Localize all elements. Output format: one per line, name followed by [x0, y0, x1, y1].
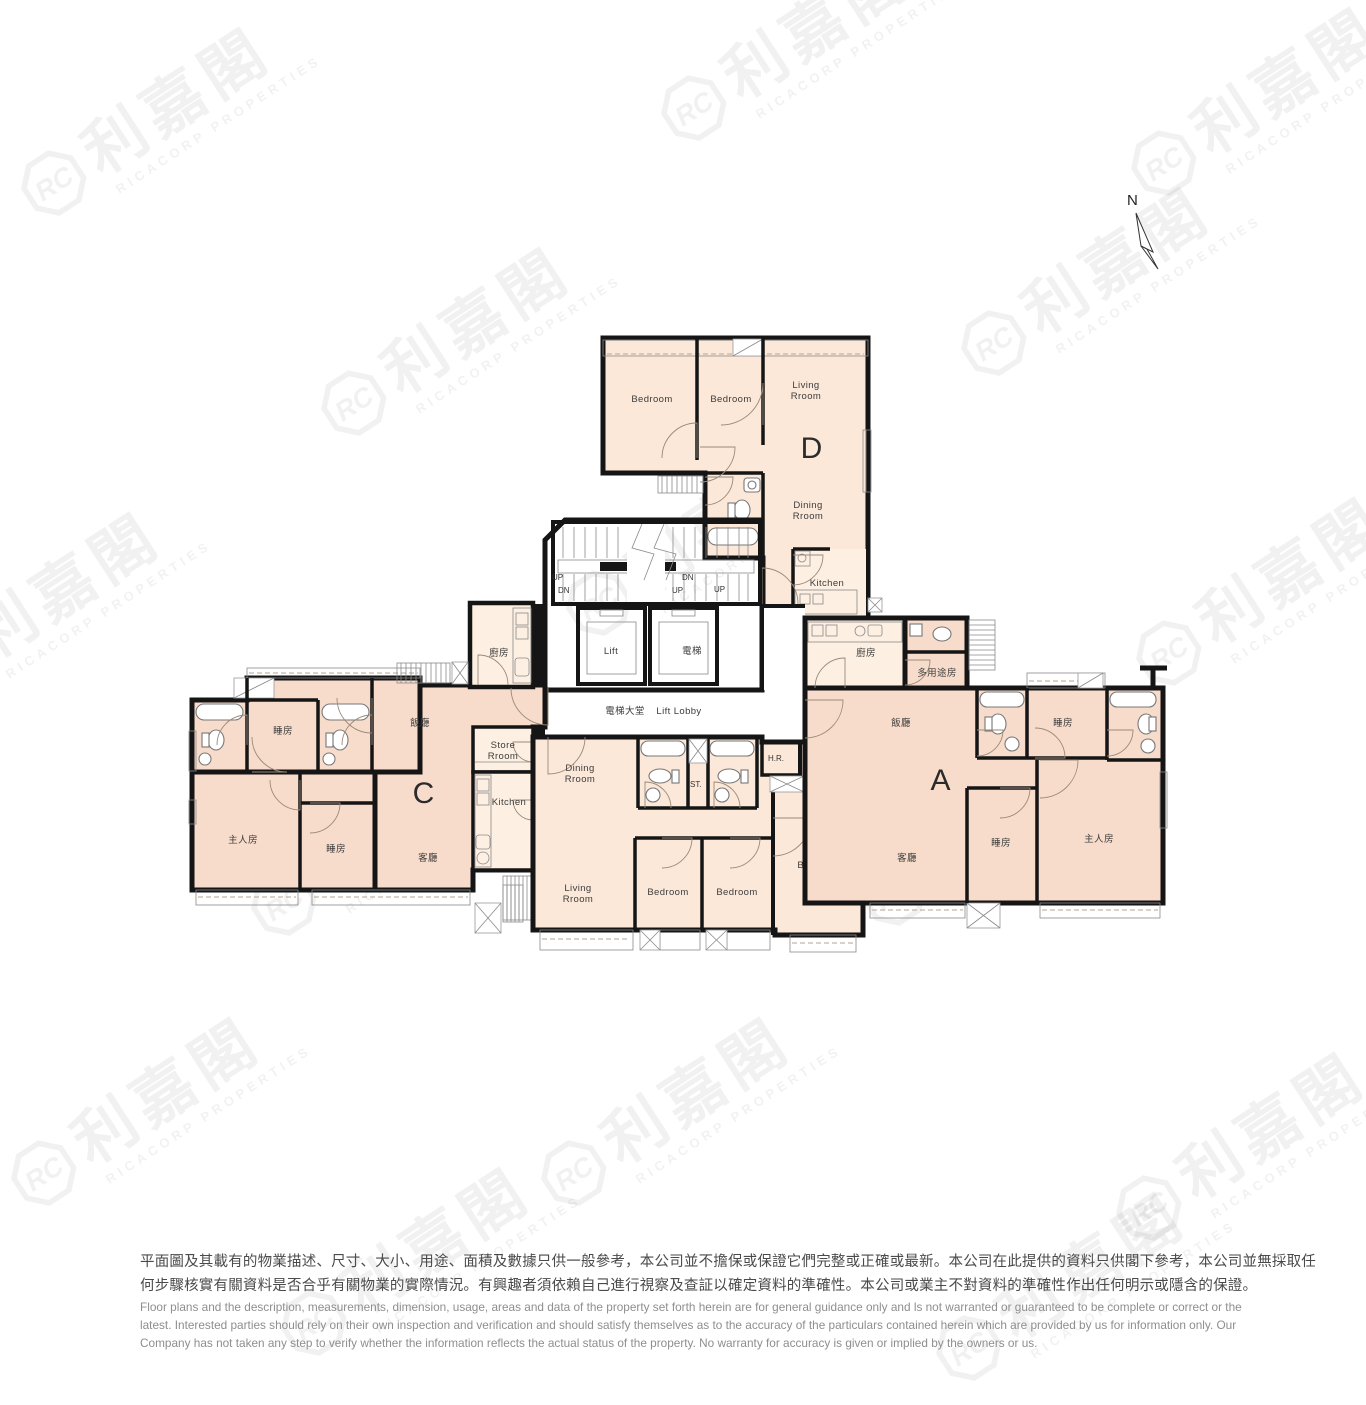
room-label-a-bed-top: 睡房	[1053, 717, 1073, 729]
room-label-c-store-1: Store	[491, 740, 516, 751]
north-arrow: N	[1127, 192, 1158, 269]
disclaimer-en-line3: Company has not taken any step to verify…	[140, 1334, 1250, 1352]
room-label-b-hr: H.R.	[768, 754, 784, 763]
unit-letter-a: A	[930, 764, 951, 797]
room-label-c-bed-top: 睡房	[273, 725, 293, 737]
core-stairs-lifts: UP DN DN UP UP Lift 電梯 電梯大堂 Lift Lobby	[532, 520, 805, 737]
stair-label-up2: UP	[672, 586, 683, 595]
room-label-a-kitchen: 廚房	[856, 647, 876, 659]
disclaimer-zh-line1: 平面圖及其載有的物業描述、尺寸、大小、用途、面積及數據只供一般參考，本公司並不擔…	[140, 1250, 1250, 1274]
stair-label-dn: DN	[558, 586, 570, 595]
room-label-c-living: 客廳	[418, 852, 438, 864]
room-label-a-dining: 飯廳	[891, 717, 911, 729]
unit-letter-d: D	[801, 432, 824, 465]
room-label-b-bedroom2: Bedroom	[716, 887, 757, 898]
floor-plan-page: { "north": { "label": "N" }, "watermark"…	[0, 0, 1366, 1366]
north-label: N	[1127, 192, 1138, 209]
unit-a: 廚房 多用途房 飯廳 睡房 A 客廳 睡房 主人房	[805, 618, 1167, 928]
room-label-a-master: 主人房	[1084, 833, 1114, 845]
room-label-d-bedroom1: Bedroom	[631, 394, 672, 405]
room-label-b-bedroom1: Bedroom	[647, 887, 688, 898]
room-label-c-store-2: Rroom	[488, 751, 519, 762]
room-label-d-living-2: Rroom	[791, 391, 822, 402]
unit-letter-c: C	[413, 777, 436, 810]
room-label-b-living-1: Living	[564, 883, 591, 894]
room-label-c-dining: 飯廳	[410, 717, 430, 729]
room-label-c-kitchen-cn: 廚房	[489, 647, 509, 659]
disclaimer-en-line1: Floor plans and the description, measure…	[140, 1298, 1250, 1316]
room-label-b-dining-1: Dining	[565, 763, 594, 774]
room-label-a-multi: 多用途房	[917, 667, 957, 679]
room-label-a-bed-bottom: 睡房	[991, 837, 1011, 849]
stair-label-up3: UP	[714, 585, 725, 594]
lift-label-cn: 電梯	[682, 645, 702, 657]
floor-plan: Bedroom Bedroom Living Rroom D Dining Rr…	[0, 0, 1366, 1366]
disclaimer-en-line2: latest. Interested parties should rely o…	[140, 1316, 1250, 1334]
room-label-a-living: 客廳	[897, 852, 917, 864]
room-label-d-dining-1: Dining	[793, 500, 822, 511]
room-label-c-bed-bottom: 睡房	[326, 843, 346, 855]
room-label-d-living-1: Living	[792, 380, 819, 391]
room-label-b-living-2: Rroom	[563, 894, 594, 905]
room-label-d-bedroom2: Bedroom	[710, 394, 751, 405]
lift-label-en: Lift	[604, 646, 618, 657]
disclaimer: 平面圖及其載有的物業描述、尺寸、大小、用途、面積及數據只供一般參考，本公司並不擔…	[140, 1250, 1250, 1352]
room-label-b-dining-2: Rroom	[565, 774, 596, 785]
room-label-b-st: ST.	[690, 780, 702, 789]
lobby-label-en: Lift Lobby	[656, 706, 701, 717]
room-label-c-kitchen-en: Kitchen	[492, 797, 527, 808]
room-label-c-master: 主人房	[228, 834, 258, 846]
unit-c: 睡房 飯廳 廚房 Store Rroom C Kitchen 主人房 睡房 客廳	[189, 603, 548, 933]
stair-label-dn2: DN	[682, 573, 694, 582]
room-label-d-dining-2: Rroom	[793, 511, 824, 522]
stair-label-up: UP	[552, 573, 563, 582]
lobby-label-cn: 電梯大堂	[605, 705, 645, 717]
room-label-d-kitchen: Kitchen	[810, 578, 845, 589]
disclaimer-zh-line2: 何步驟核實有關資料是否合乎有關物業的實際情況。有興趣者須依賴自己進行視察及查証以…	[140, 1274, 1250, 1298]
